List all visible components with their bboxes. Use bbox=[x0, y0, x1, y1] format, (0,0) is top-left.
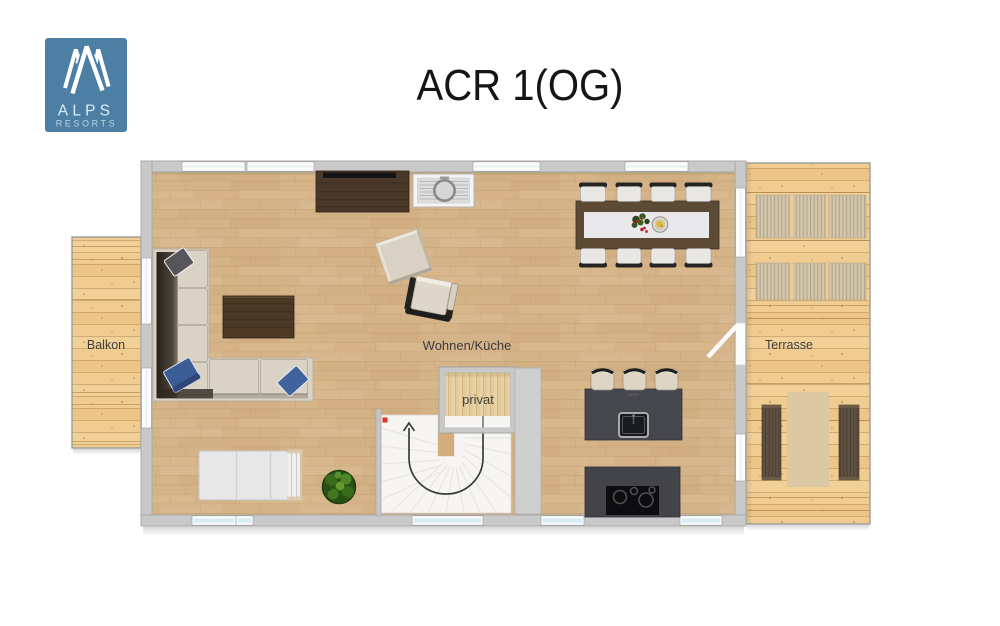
svg-text:Balkon: Balkon bbox=[87, 338, 125, 352]
svg-text:Wohnen/Küche: Wohnen/Küche bbox=[423, 338, 512, 353]
svg-text:Terrasse: Terrasse bbox=[765, 338, 813, 352]
svg-text:RESORTS: RESORTS bbox=[56, 119, 118, 129]
svg-text:ALPS: ALPS bbox=[58, 103, 114, 120]
svg-text:privat: privat bbox=[462, 392, 494, 407]
svg-text:ACR 1(OG): ACR 1(OG) bbox=[417, 61, 624, 110]
